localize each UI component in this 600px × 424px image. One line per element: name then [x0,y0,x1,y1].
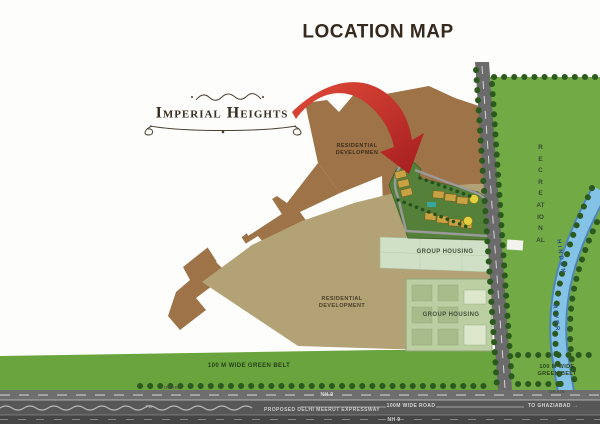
page-title: LOCATION MAP [302,21,453,46]
label-green-belt-right: 100 M WIDE GREEN BELT [537,364,576,378]
east-arrow-icon: → [573,403,578,409]
label-to-ghaziabad: TO GHAZIABAD → [528,403,578,410]
label-nh9-lower: NH 9 [388,417,401,424]
label-residential-upper: RESIDENTIAL DEVELOPMEN [336,143,379,157]
map-artwork [0,0,600,424]
site-pool [427,202,436,207]
label-100m-wide-road: 100M WIDE ROAD [387,403,436,410]
label-nh9-upper: NH 9 [321,392,334,399]
label-drain-right: DRAIN [549,389,565,395]
label-drain-left: DRAIN [164,385,180,391]
label-group-housing-lower: GROUP HOUSING [423,312,480,320]
roadside-plot [507,239,524,250]
location-map: LOCATION MAP Imperial Heights RESIDENTIA… [0,0,600,424]
site-round-tower [464,217,473,226]
label-fb: FB [146,404,153,410]
label-residential-lower: RESIDENTIAL DEVELOPMENT [319,296,365,310]
label-group-housing-upper: GROUP HOUSING [417,249,474,257]
label-recreational: RECREATIONAL [536,142,545,246]
label-green-belt-left: 100 M WIDE GREEN BELT [208,363,290,371]
project-logo: Imperial Heights [156,104,289,125]
road-nh9-upper [0,390,600,400]
label-expressway: PROPOSED DELHI MEERUT EXPRESSWAY [264,407,380,414]
